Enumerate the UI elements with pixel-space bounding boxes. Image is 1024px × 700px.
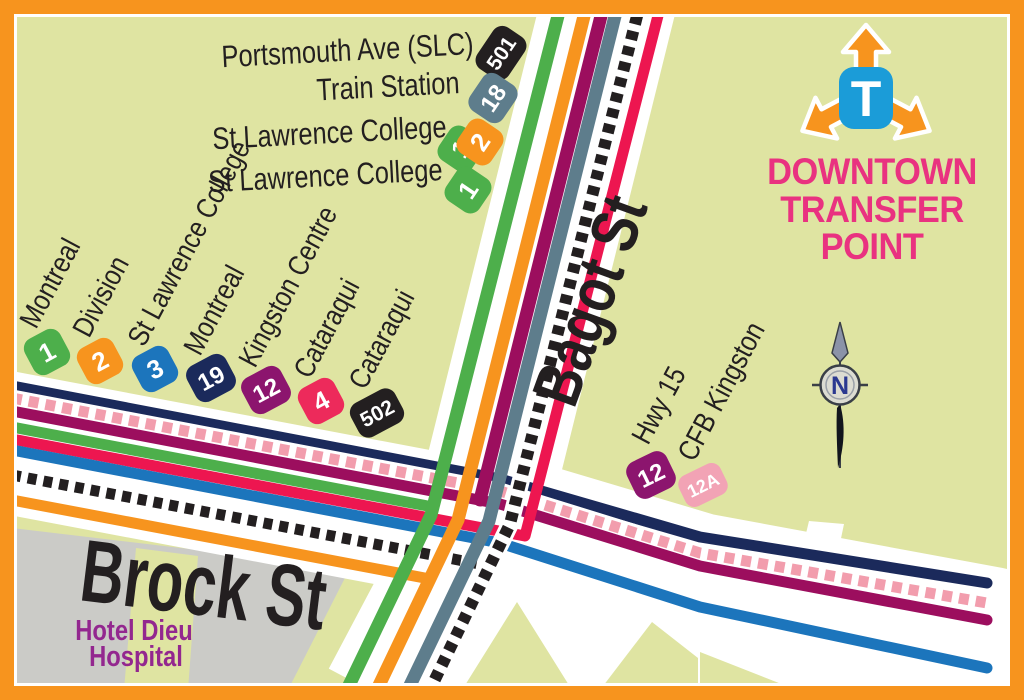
landmark-label: Hospital xyxy=(89,640,183,673)
map-canvas: Portsmouth Ave (SLC) 501 Train Station 1… xyxy=(0,0,1024,700)
road-stub xyxy=(803,521,844,548)
title-line: TRANSFER xyxy=(780,189,964,230)
compass-north-label: N xyxy=(831,372,849,400)
transit-map: Portsmouth Ave (SLC) 501 Train Station 1… xyxy=(0,0,1024,700)
landmark-hotel-dieu: Hotel Dieu Hospital xyxy=(75,614,193,673)
title-line: DOWNTOWN xyxy=(767,151,977,192)
stop-label: Train Station xyxy=(316,66,461,108)
title-line: POINT xyxy=(821,226,924,267)
logo-letter: T xyxy=(851,71,882,127)
